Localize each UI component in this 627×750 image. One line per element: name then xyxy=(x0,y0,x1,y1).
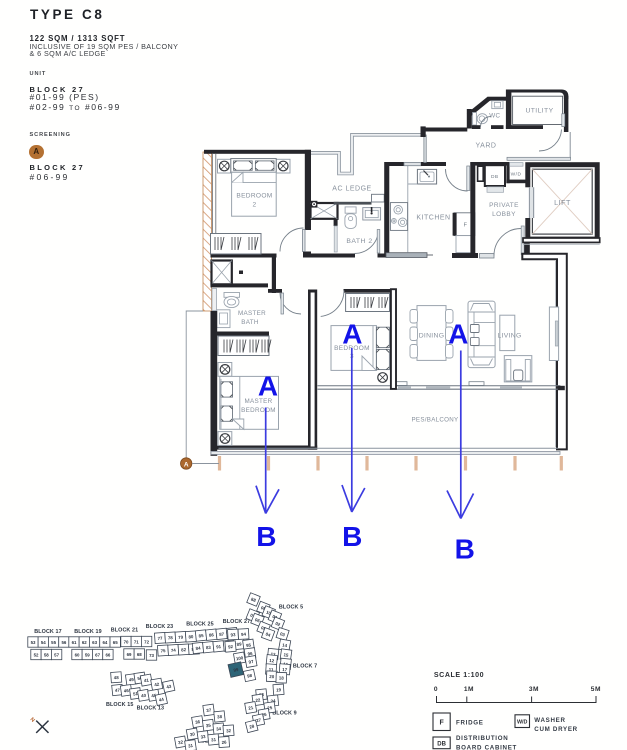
svg-text:52: 52 xyxy=(34,652,39,657)
svg-text:DB: DB xyxy=(491,174,499,180)
svg-text:F: F xyxy=(439,720,444,727)
svg-text:77: 77 xyxy=(157,636,163,641)
svg-text:72: 72 xyxy=(144,639,149,644)
svg-text:2: 2 xyxy=(253,202,257,209)
svg-text:60: 60 xyxy=(75,652,80,657)
svg-text:BLOCK 27: BLOCK 27 xyxy=(223,619,250,625)
svg-text:BLOCK 9: BLOCK 9 xyxy=(272,711,296,717)
svg-text:80: 80 xyxy=(188,634,194,639)
svg-text:CUM DRYER: CUM DRYER xyxy=(534,726,578,733)
svg-text:20: 20 xyxy=(269,674,275,679)
svg-text:B: B xyxy=(342,521,362,552)
svg-text:F: F xyxy=(464,223,468,229)
svg-text:55: 55 xyxy=(51,640,56,645)
svg-text:SCALE 1:100: SCALE 1:100 xyxy=(434,671,484,679)
svg-text:32: 32 xyxy=(226,728,232,733)
svg-text:17: 17 xyxy=(282,667,288,672)
svg-text:65: 65 xyxy=(113,640,118,645)
svg-text:93: 93 xyxy=(230,632,236,637)
svg-text:UTILITY: UTILITY xyxy=(525,108,553,115)
svg-text:63: 63 xyxy=(92,640,97,645)
svg-text:54: 54 xyxy=(41,640,46,645)
svg-text:BATH 2: BATH 2 xyxy=(346,238,372,245)
svg-text:18: 18 xyxy=(279,675,285,680)
svg-text:LIFT: LIFT xyxy=(554,198,571,207)
svg-text:DINING: DINING xyxy=(419,332,445,339)
svg-text:59: 59 xyxy=(85,652,90,657)
svg-text:BEDROOM: BEDROOM xyxy=(236,193,272,200)
svg-text:3M: 3M xyxy=(529,686,539,693)
svg-text:LOBBY: LOBBY xyxy=(492,211,516,218)
svg-text:FRIDGE: FRIDGE xyxy=(456,720,484,727)
svg-text:53: 53 xyxy=(31,640,36,645)
svg-text:73: 73 xyxy=(149,653,154,658)
svg-text:82: 82 xyxy=(181,647,187,652)
svg-text:74: 74 xyxy=(171,648,177,653)
svg-text:75: 75 xyxy=(160,648,166,653)
svg-text:BLOCK 15: BLOCK 15 xyxy=(106,702,133,708)
svg-text:1M: 1M xyxy=(464,686,474,693)
svg-text:BEDROOM: BEDROOM xyxy=(241,407,276,414)
svg-text:70: 70 xyxy=(124,639,129,644)
svg-text:19: 19 xyxy=(276,687,282,692)
svg-text:KITCHEN: KITCHEN xyxy=(416,215,450,222)
svg-text:79: 79 xyxy=(178,635,184,640)
svg-text:0: 0 xyxy=(434,686,438,693)
svg-text:BOARD CABINET: BOARD CABINET xyxy=(456,745,517,750)
svg-text:A: A xyxy=(258,371,278,402)
svg-text:MASTER: MASTER xyxy=(238,310,266,317)
svg-text:LIVING: LIVING xyxy=(497,332,521,339)
svg-text:B: B xyxy=(455,533,475,564)
svg-text:5M: 5M xyxy=(591,686,601,693)
svg-text:67: 67 xyxy=(95,652,100,657)
svg-text:BLOCK 21: BLOCK 21 xyxy=(111,628,138,634)
svg-text:68: 68 xyxy=(137,652,142,657)
svg-text:69: 69 xyxy=(127,652,132,657)
svg-text:94: 94 xyxy=(241,632,247,637)
svg-text:71: 71 xyxy=(134,639,139,644)
svg-text:BLOCK 7: BLOCK 7 xyxy=(293,664,317,670)
svg-text:48: 48 xyxy=(114,675,120,680)
svg-text:26: 26 xyxy=(221,740,227,745)
svg-text:AC LEDGE: AC LEDGE xyxy=(332,186,371,193)
svg-text:61: 61 xyxy=(72,640,77,645)
svg-text:58: 58 xyxy=(44,652,49,657)
svg-text:W/D: W/D xyxy=(511,172,522,178)
svg-text:BLOCK 5: BLOCK 5 xyxy=(279,605,303,611)
svg-text:BLOCK 25: BLOCK 25 xyxy=(186,622,213,628)
svg-text:66: 66 xyxy=(105,652,110,657)
svg-text:WASHER: WASHER xyxy=(534,717,565,724)
svg-text:64: 64 xyxy=(102,640,107,645)
svg-text:BLOCK 13: BLOCK 13 xyxy=(137,706,164,712)
svg-text:62: 62 xyxy=(82,640,87,645)
svg-text:N: N xyxy=(29,717,36,724)
svg-text:BLOCK 23: BLOCK 23 xyxy=(146,624,173,630)
svg-text:YARD: YARD xyxy=(476,143,497,150)
svg-text:A: A xyxy=(184,461,189,468)
svg-text:A: A xyxy=(448,319,468,350)
svg-text:PRIVATE: PRIVATE xyxy=(489,202,519,209)
svg-text:56: 56 xyxy=(61,640,66,645)
svg-text:B: B xyxy=(256,521,276,552)
svg-text:78: 78 xyxy=(168,635,174,640)
svg-text:DB: DB xyxy=(437,742,446,748)
svg-text:BATH: BATH xyxy=(241,319,259,326)
svg-text:DISTRIBUTION: DISTRIBUTION xyxy=(456,735,508,742)
svg-text:57: 57 xyxy=(54,652,59,657)
svg-text:WC: WC xyxy=(489,113,500,120)
svg-text:BLOCK 19: BLOCK 19 xyxy=(74,629,101,635)
svg-text:PES/BALCONY: PES/BALCONY xyxy=(412,417,459,424)
svg-text:A: A xyxy=(342,319,362,350)
svg-text:BLOCK 17: BLOCK 17 xyxy=(34,629,61,635)
svg-text:W/D: W/D xyxy=(517,720,528,726)
